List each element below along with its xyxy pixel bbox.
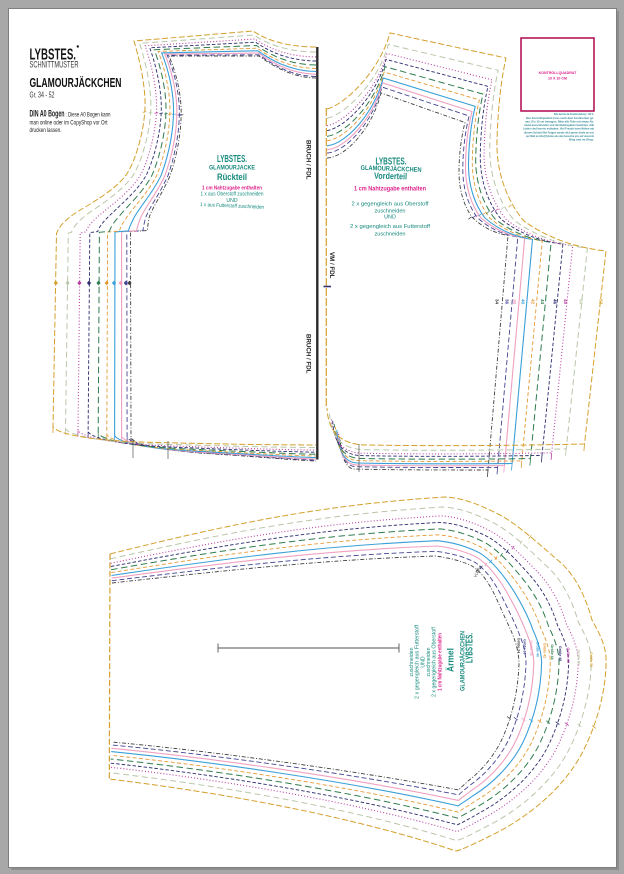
svg-text:52: 52 (598, 299, 603, 305)
svg-text:GLAMOURJACKE: GLAMOURJACKE (209, 164, 256, 171)
svg-text:man online oder im CopyShop vo: man online oder im CopyShop vor Ort (30, 120, 108, 127)
svg-text:1 cm Nahtzugabe enthalten: 1 cm Nahtzugabe enthalten (438, 633, 444, 691)
svg-text:UND: UND (421, 656, 427, 667)
svg-text:Größe 52: Größe 52 (589, 652, 593, 667)
svg-text:Größe 38: Größe 38 (529, 640, 533, 655)
svg-text:Rückteil: Rückteil (217, 172, 247, 182)
svg-text:BRUCH / FDL: BRUCH / FDL (305, 140, 312, 180)
svg-text:2 x gegengleich aus Futterstof: 2 x gegengleich aus Futterstoff (415, 624, 421, 699)
svg-text:48: 48 (563, 299, 568, 305)
svg-text:Größe 34: Größe 34 (517, 638, 521, 653)
svg-text:1 cm Nahtzugabe enthalten: 1 cm Nahtzugabe enthalten (354, 187, 426, 193)
svg-text:Größe 48: Größe 48 (566, 648, 570, 663)
svg-text:Vorderteil: Vorderteil (374, 171, 407, 182)
svg-text:Ärmel: Ärmel (446, 648, 456, 672)
svg-text:GLAMOURJÄCKCHEN: GLAMOURJÄCKCHEN (458, 631, 466, 691)
svg-text:40: 40 (520, 299, 525, 305)
svg-text:: Diese A0 Bogen kann: : Diese A0 Bogen kann (66, 112, 111, 119)
svg-text:Blog und im Shop.: Blog und im Shop. (569, 138, 594, 142)
svg-text:Größe 42: Größe 42 (543, 643, 547, 658)
svg-text:38: 38 (512, 299, 517, 305)
svg-text:Größe 40: Größe 40 (535, 642, 539, 657)
svg-text:GLAMOURJÄCKCHEN: GLAMOURJÄCKCHEN (30, 75, 122, 90)
svg-text:1 x aus Oberstoff zuschneiden: 1 x aus Oberstoff zuschneiden (201, 192, 264, 198)
svg-text:1 cm Nahtzugabe enthalten: 1 cm Nahtzugabe enthalten (202, 185, 262, 191)
svg-text:zuschneiden: zuschneiden (426, 647, 432, 676)
svg-text:VM / FDL: VM / FDL (328, 252, 335, 279)
svg-text:Größe 50: Größe 50 (577, 650, 581, 665)
svg-text:drucken lassen.: drucken lassen. (30, 127, 62, 134)
svg-text:10 X 10 CM: 10 X 10 CM (548, 77, 567, 81)
svg-text:SCHNITTMUSTER: SCHNITTMUSTER (30, 60, 79, 70)
svg-text:46: 46 (553, 299, 558, 305)
svg-text:2 x gegengleich aus Oberstoff: 2 x gegengleich aus Oberstoff (432, 626, 438, 697)
svg-text:Größe 46: Größe 46 (558, 646, 562, 661)
svg-text:Gr. 34 - 52: Gr. 34 - 52 (30, 91, 55, 100)
svg-text:42: 42 (531, 299, 536, 305)
svg-text:zuschneiden: zuschneiden (375, 231, 406, 237)
svg-text:34: 34 (494, 299, 499, 305)
svg-text:UND: UND (384, 215, 396, 221)
svg-text:Größe 36: Größe 36 (522, 639, 526, 654)
svg-text:Größe 44: Größe 44 (550, 644, 554, 659)
svg-text:2 x gegengleich aus Futterstof: 2 x gegengleich aus Futterstoff (350, 224, 431, 230)
svg-text:44: 44 (540, 299, 545, 305)
svg-text:2 x gegengleich aus Oberstoff: 2 x gegengleich aus Oberstoff (352, 201, 430, 207)
svg-text:50: 50 (579, 299, 584, 305)
svg-text:36: 36 (505, 299, 510, 305)
svg-text:DIN A0 Bogen: DIN A0 Bogen (30, 109, 65, 119)
svg-text:zuschneiden: zuschneiden (409, 647, 415, 676)
svg-text:BRUCH / FDL: BRUCH / FDL (305, 334, 312, 374)
svg-text:KONTROLLQUADRAT: KONTROLLQUADRAT (539, 71, 577, 75)
